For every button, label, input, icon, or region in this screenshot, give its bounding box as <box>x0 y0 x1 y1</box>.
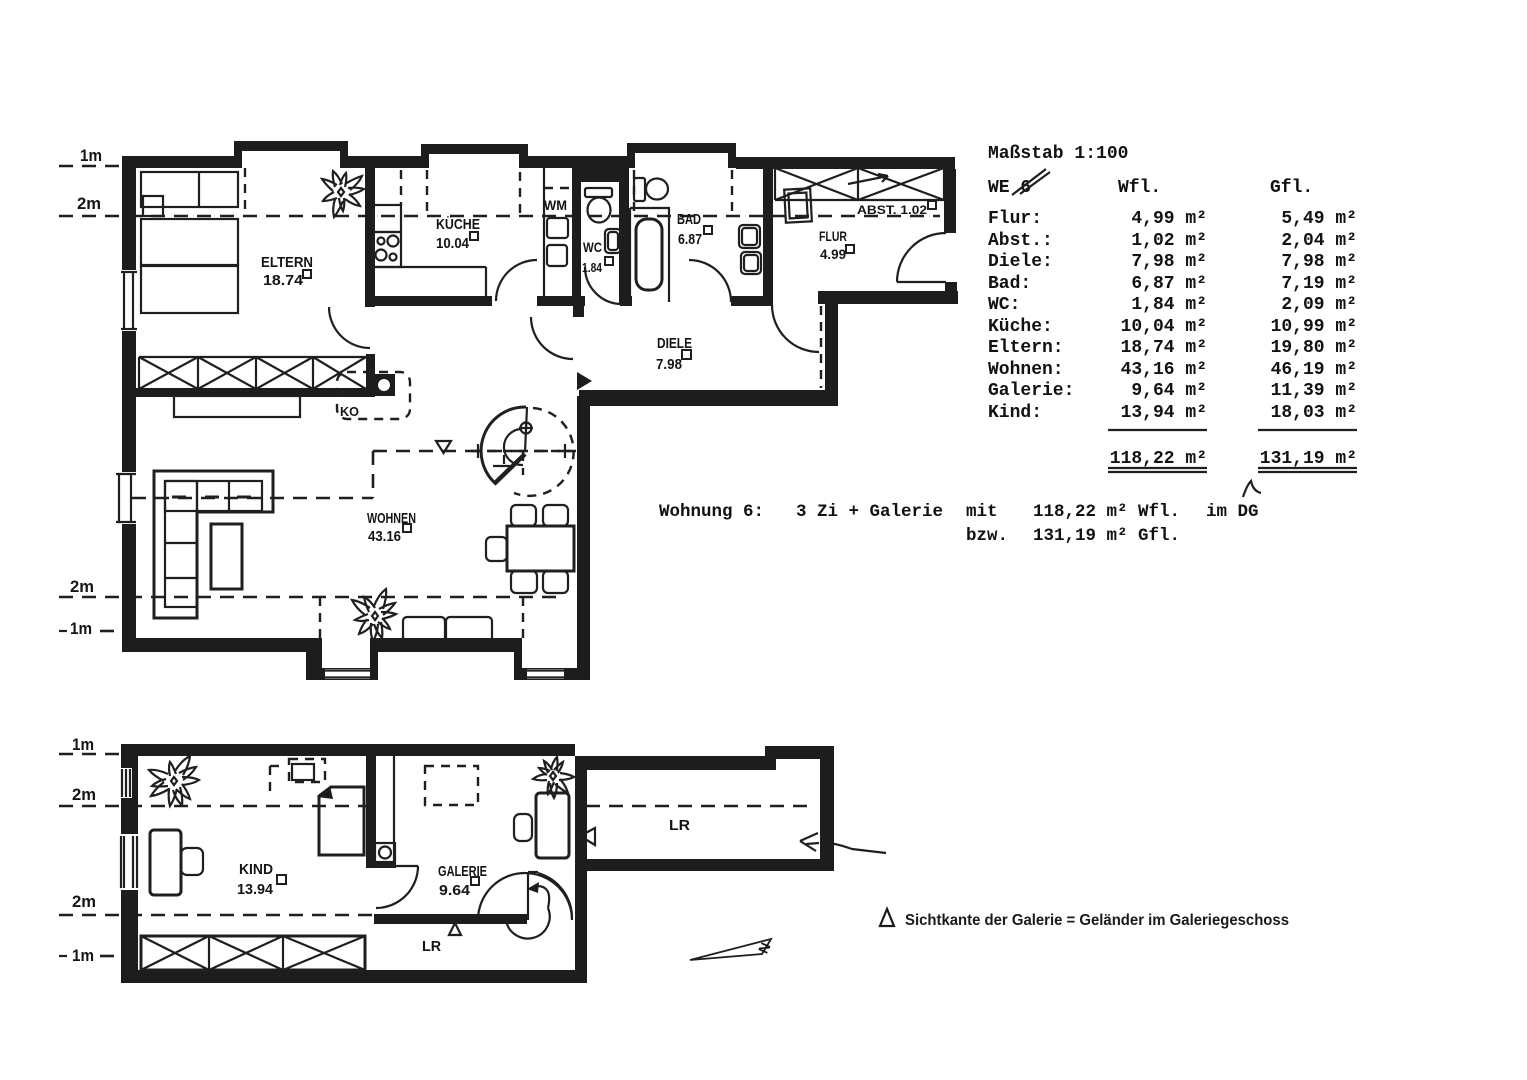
svg-text:2m: 2m <box>70 577 94 596</box>
svg-text:Galerie:: Galerie: <box>988 381 1074 401</box>
svg-text:FLUR: FLUR <box>819 228 847 244</box>
svg-text:1m: 1m <box>72 735 94 754</box>
svg-text:2m: 2m <box>72 892 96 911</box>
svg-text:6.87: 6.87 <box>678 231 702 248</box>
svg-text:ABST. 1.02: ABST. 1.02 <box>857 203 927 217</box>
svg-text:19,80 m²: 19,80 m² <box>1271 338 1357 358</box>
svg-text:18,74 m²: 18,74 m² <box>1121 338 1207 358</box>
svg-text:43.16: 43.16 <box>368 528 401 545</box>
svg-text:Maßstab 1:100: Maßstab 1:100 <box>988 144 1128 164</box>
svg-text:im DG: im DG <box>1206 502 1259 522</box>
svg-text:118,22 m²: 118,22 m² <box>1110 449 1207 469</box>
svg-text:LR: LR <box>422 938 441 955</box>
svg-text:9.64: 9.64 <box>439 882 471 899</box>
svg-text:KO: KO <box>340 404 359 419</box>
svg-text:118,22 m² Wfl.: 118,22 m² Wfl. <box>1033 502 1180 522</box>
svg-text:7,98 m²: 7,98 m² <box>1131 252 1207 272</box>
svg-text:Wfl.: Wfl. <box>1118 178 1161 198</box>
svg-text:WC:: WC: <box>988 295 1020 315</box>
svg-text:Kind:: Kind: <box>988 403 1042 423</box>
svg-text:4,99 m²: 4,99 m² <box>1131 209 1207 229</box>
svg-text:7.98: 7.98 <box>656 356 682 373</box>
svg-text:WM: WM <box>544 197 567 213</box>
svg-text:BAD: BAD <box>677 211 701 228</box>
svg-text:18.74: 18.74 <box>263 272 304 289</box>
svg-text:18,03 m²: 18,03 m² <box>1271 403 1357 423</box>
svg-text:10,99 m²: 10,99 m² <box>1271 317 1357 337</box>
svg-text:Gfl.: Gfl. <box>1270 178 1313 198</box>
svg-text:43,16 m²: 43,16 m² <box>1121 360 1207 380</box>
svg-text:2m: 2m <box>77 194 101 213</box>
svg-text:7,19 m²: 7,19 m² <box>1281 274 1357 294</box>
svg-text:5,49 m²: 5,49 m² <box>1281 209 1357 229</box>
svg-text:1m: 1m <box>70 619 92 638</box>
svg-text:2,04 m²: 2,04 m² <box>1281 231 1357 251</box>
svg-text:1.84: 1.84 <box>582 260 603 275</box>
svg-text:9,64 m²: 9,64 m² <box>1131 381 1207 401</box>
svg-text:1m: 1m <box>80 146 102 165</box>
svg-text:1m: 1m <box>72 946 94 965</box>
svg-text:Flur:: Flur: <box>988 209 1042 229</box>
svg-text:Eltern:: Eltern: <box>988 338 1064 358</box>
svg-text:2,09 m²: 2,09 m² <box>1281 295 1357 315</box>
svg-text:WE 6: WE 6 <box>988 178 1031 198</box>
svg-text:1,02 m²: 1,02 m² <box>1131 231 1207 251</box>
svg-text:46,19 m²: 46,19 m² <box>1271 360 1357 380</box>
svg-text:Küche:: Küche: <box>988 317 1053 337</box>
svg-text:KÜCHE: KÜCHE <box>436 216 480 233</box>
svg-text:131,19 m² Gfl.: 131,19 m² Gfl. <box>1033 526 1180 546</box>
svg-text:Wohnung 6:: Wohnung 6: <box>659 502 764 522</box>
svg-text:WC: WC <box>583 239 602 255</box>
svg-text:ELTERN: ELTERN <box>261 254 313 271</box>
svg-text:10,04 m²: 10,04 m² <box>1121 317 1207 337</box>
svg-text:7,98 m²: 7,98 m² <box>1281 252 1357 272</box>
svg-text:13,94 m²: 13,94 m² <box>1121 403 1207 423</box>
svg-text:Bad:: Bad: <box>988 274 1031 294</box>
svg-text:11,39 m²: 11,39 m² <box>1271 381 1357 401</box>
svg-text:13.94: 13.94 <box>237 881 274 898</box>
svg-text:131,19 m²: 131,19 m² <box>1260 449 1357 469</box>
svg-text:4.99: 4.99 <box>820 246 846 262</box>
svg-text:Sichtkante der Galerie = Gelän: Sichtkante der Galerie = Geländer im Gal… <box>905 912 1289 929</box>
svg-text:Diele:: Diele: <box>988 252 1053 272</box>
svg-text:2m: 2m <box>72 785 96 804</box>
svg-text:LR: LR <box>669 817 690 834</box>
svg-text:3 Zi + Galerie: 3 Zi + Galerie <box>796 502 943 522</box>
svg-text:10.04: 10.04 <box>436 235 470 252</box>
svg-text:bzw.: bzw. <box>966 526 1008 546</box>
svg-text:6,87 m²: 6,87 m² <box>1131 274 1207 294</box>
svg-text:Abst.:: Abst.: <box>988 231 1053 251</box>
svg-text:Wohnen:: Wohnen: <box>988 360 1064 380</box>
svg-text:mit: mit <box>966 502 998 522</box>
svg-text:KIND: KIND <box>239 861 273 878</box>
svg-text:1,84 m²: 1,84 m² <box>1131 295 1207 315</box>
